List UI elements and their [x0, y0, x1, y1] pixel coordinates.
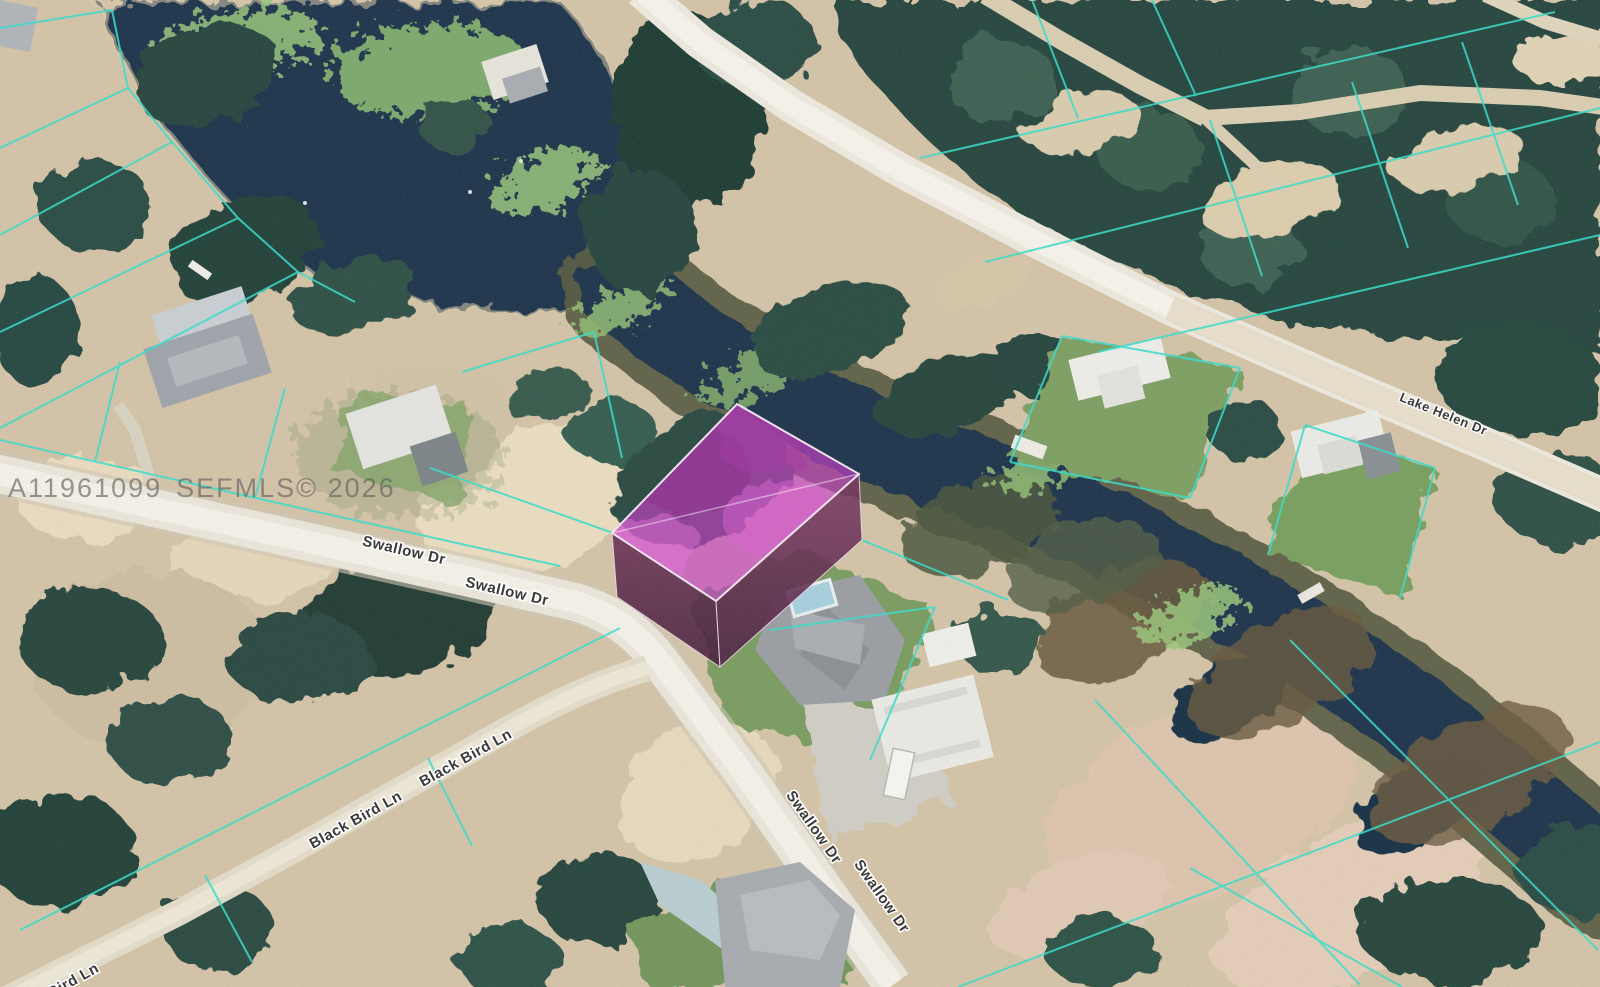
map-image: Swallow Dr Swallow Dr Swallow Dr Swallow… [0, 0, 1600, 987]
mls-watermark: A11961099SEFMLS© 2026 [8, 473, 396, 503]
listing-aerial-photo: Swallow Dr Swallow Dr Swallow Dr Swallow… [0, 0, 1600, 987]
